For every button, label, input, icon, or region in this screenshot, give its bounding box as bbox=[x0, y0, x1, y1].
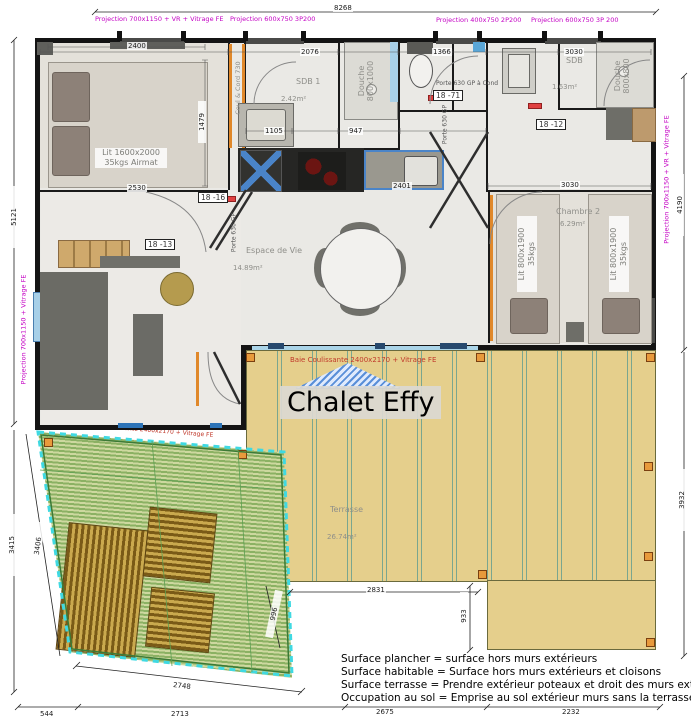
projection-label-top4: Projection 600x750 3P 200 bbox=[531, 17, 618, 24]
page-title: Chalet Effy bbox=[280, 386, 441, 419]
door-label-gp: Porte 630 GP bbox=[231, 193, 238, 273]
legend: Surface plancher = surface hors murs ext… bbox=[341, 653, 691, 705]
dim-kitchen: 2401 bbox=[392, 182, 412, 190]
dim-wc-top: 1366 bbox=[432, 48, 452, 56]
room-label-douche2: Douche 800x800 bbox=[613, 36, 631, 116]
door-tag-1812: 18 -12 bbox=[536, 119, 566, 130]
dim-bottom-2232: 2232 bbox=[561, 708, 581, 716]
dim-c1-side: 1479 bbox=[198, 101, 206, 143]
room-label-couloir: Coul & Cord 730 bbox=[234, 48, 242, 128]
bed-small-label: Lit 800x1900 35kgs bbox=[517, 216, 537, 292]
projection-label-top3: Projection 400x750 2P200 bbox=[436, 17, 521, 24]
dim-right-upper: 4190 bbox=[676, 174, 684, 236]
dim-sink: 947 bbox=[348, 127, 363, 135]
dim-notch-v: 933 bbox=[460, 592, 468, 640]
dim-bottom-2713: 2713 bbox=[170, 710, 190, 718]
room-label-terrasse: Terrasse bbox=[330, 505, 363, 514]
bed-main-label: Lit 1600x2000 35kgs Airmat bbox=[95, 148, 167, 168]
baie-label: Baie Coulissante 2400x2170 + Vitrage FE bbox=[290, 356, 436, 364]
dim-bottom-544: 544 bbox=[39, 710, 54, 718]
dim-right-lower: 3932 bbox=[678, 469, 686, 531]
projection-label-top1: Projection 700x1150 + VR + Vitrage FE bbox=[95, 16, 223, 23]
dim-c1-bottom: 2530 bbox=[127, 184, 147, 192]
room-label-chambre2: Chambre 2 bbox=[556, 207, 600, 216]
door-tag-1816: 18 -16 bbox=[198, 192, 228, 203]
projection-label-top2: Projection 600x750 3P200 bbox=[230, 16, 315, 23]
dim-terr-bottom: 2831 bbox=[366, 586, 386, 594]
room-area-chambre2: 6.29m² bbox=[560, 220, 585, 228]
dim-top: 8268 bbox=[333, 4, 353, 12]
room-label-sdb2: SDB bbox=[566, 56, 583, 65]
dim-c1-top: 2400 bbox=[127, 42, 147, 50]
legend-line-1: Surface plancher = surface hors murs ext… bbox=[341, 653, 691, 666]
dim-washer: 1105 bbox=[264, 127, 284, 135]
room-area-sdb2: 1.63m² bbox=[552, 83, 577, 91]
door-tag-1871: 18 -71 bbox=[433, 90, 463, 101]
dim-bottom-2675: 2675 bbox=[375, 708, 395, 716]
room-area-sdb1: 2.42m² bbox=[281, 95, 306, 103]
projection-label-left: Projection 700x1150 + Vitrage FE bbox=[21, 250, 28, 410]
dim-ch2-top: 3030 bbox=[560, 181, 580, 189]
room-label-vie: Espace de Vie bbox=[246, 246, 302, 255]
bed-small-label: Lit 800x1900 35kgs bbox=[609, 216, 629, 292]
projection-label-right: Projection 700x1150 + VR + Vitrage FE bbox=[664, 94, 671, 266]
dim-left-upper: 5121 bbox=[10, 186, 18, 248]
dim-sdb2-top: 3030 bbox=[564, 48, 584, 56]
room-label-sdb1: SDB 1 bbox=[296, 77, 320, 86]
legend-line-2: Surface habitable = Surface hors murs ex… bbox=[341, 666, 691, 679]
door-tag-1813: 18 -13 bbox=[145, 239, 175, 250]
legend-line-3: Surface terrasse = Prendre extérieur pot… bbox=[341, 679, 691, 692]
floor-plan: Baie Coulissante 2400x2170 + Vitrage FE bbox=[0, 0, 691, 718]
room-area-terrasse: 26.74m² bbox=[327, 533, 357, 541]
legend-line-4: Occupation au sol = Emprise au sol extér… bbox=[341, 692, 691, 705]
room-label-douche1: Douche 800x1000 bbox=[357, 41, 375, 121]
dim-left-lower: 3415 bbox=[8, 514, 16, 576]
dim-sdb-top: 2076 bbox=[300, 48, 320, 56]
